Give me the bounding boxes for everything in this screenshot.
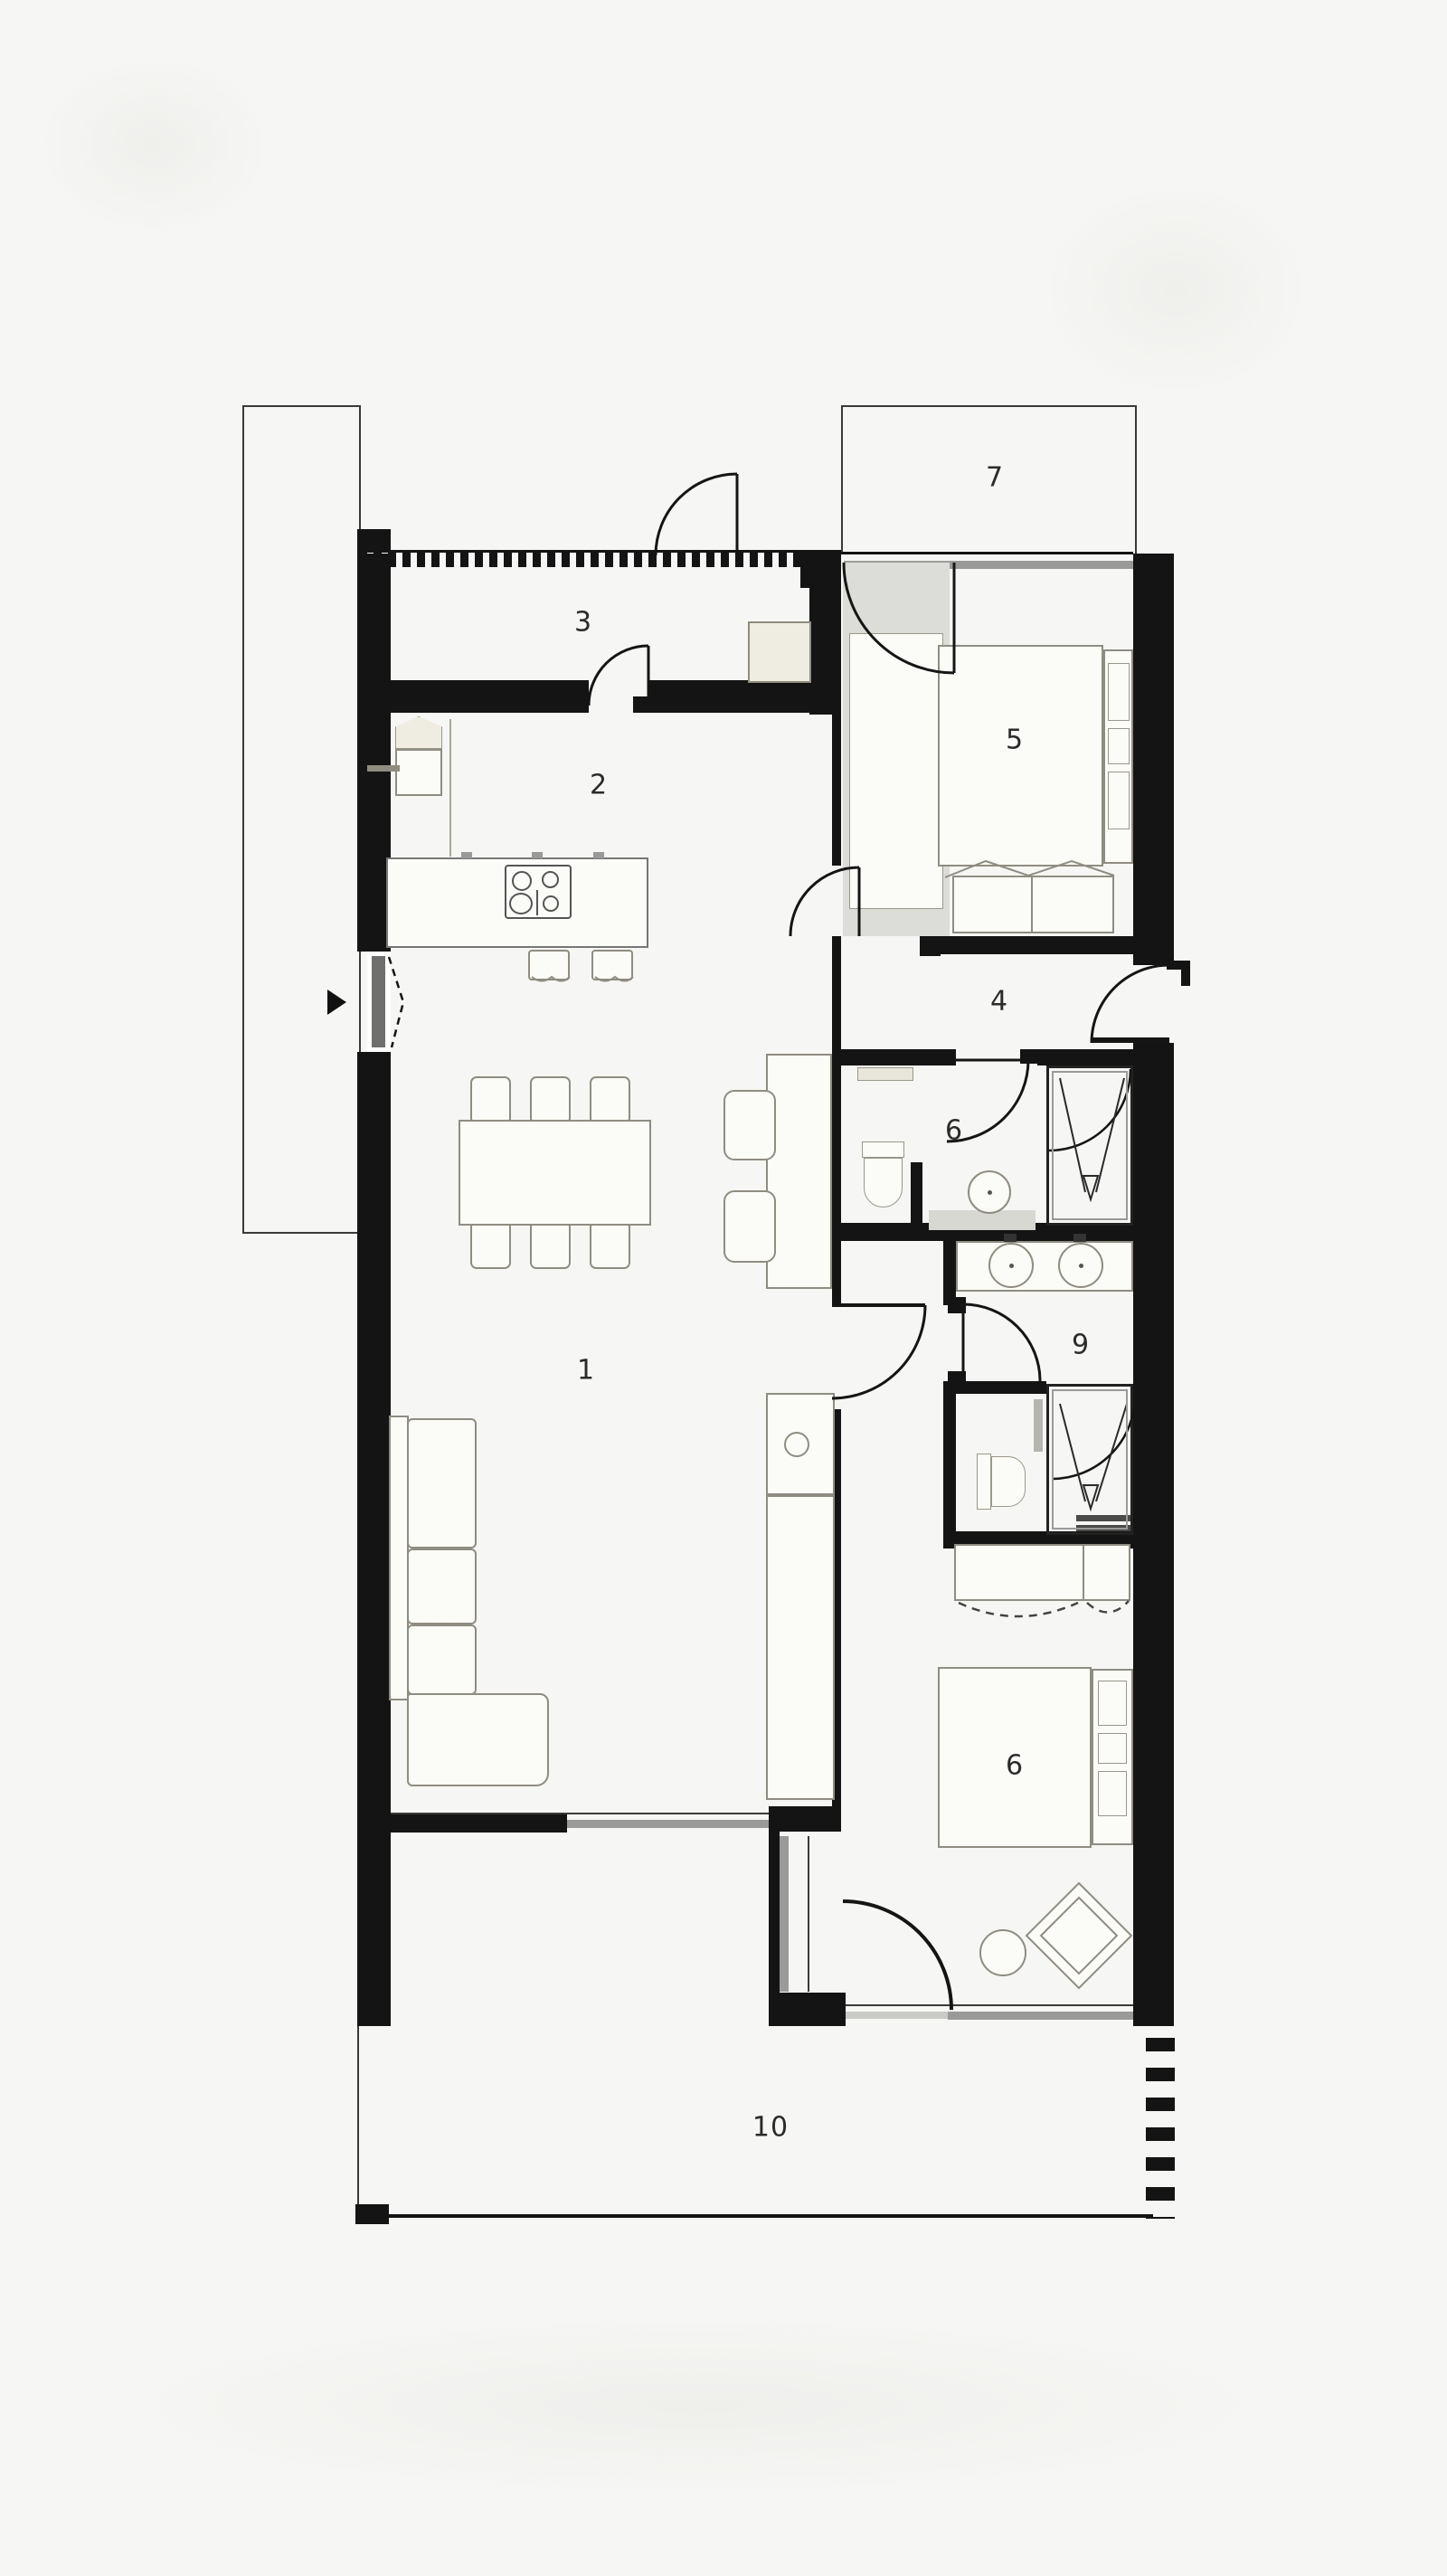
hanging-rail-symbol (1087, 1601, 1129, 1613)
door-swing-arc (947, 1060, 1028, 1141)
shower-door-arc (1052, 1396, 1135, 1479)
plan-symbol-overlay (0, 0, 1447, 2576)
door-swing-arc (589, 646, 648, 706)
door-swing-arc (843, 1901, 951, 2010)
door-swing-arc (1092, 965, 1169, 1043)
shower-drain-line (1096, 1404, 1127, 1501)
blanket-fold-lines (945, 861, 1114, 877)
shower-drain-funnel (1083, 1485, 1098, 1509)
door-swing-arc (832, 1305, 925, 1398)
door-swing-arc (844, 563, 954, 673)
stool-seat-line (532, 977, 570, 981)
hanging-rail-symbol (959, 1603, 1078, 1616)
door-swing-arc (790, 867, 859, 936)
door-swing-arc (656, 474, 737, 555)
window-opening-symbol (389, 957, 403, 1047)
shower-drain-funnel (1083, 1176, 1098, 1199)
door-swing-arc (963, 1304, 1040, 1381)
entrance-arrow-icon (327, 990, 346, 1015)
shower-drain-line (1060, 1404, 1085, 1501)
shower-drain-line (1060, 1078, 1085, 1192)
shower-drain-line (1096, 1078, 1124, 1192)
stool-seat-line (595, 977, 633, 981)
floor-plan-canvas: 1 2 3 4 5 6 7 6 9 10 (0, 0, 1447, 2576)
